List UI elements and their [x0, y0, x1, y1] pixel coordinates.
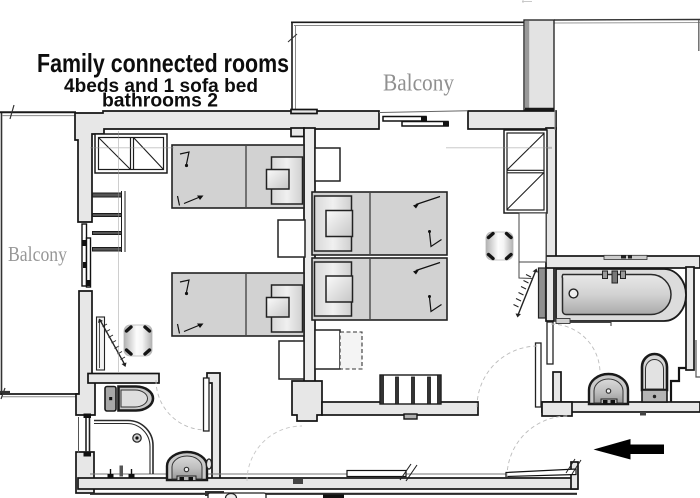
svg-text:Balcony: Balcony [8, 242, 67, 266]
svg-text:Balcony: Balcony [383, 71, 454, 97]
svg-text:bathrooms 2: bathrooms 2 [102, 90, 218, 112]
svg-text:Family connected rooms: Family connected rooms [37, 48, 289, 78]
